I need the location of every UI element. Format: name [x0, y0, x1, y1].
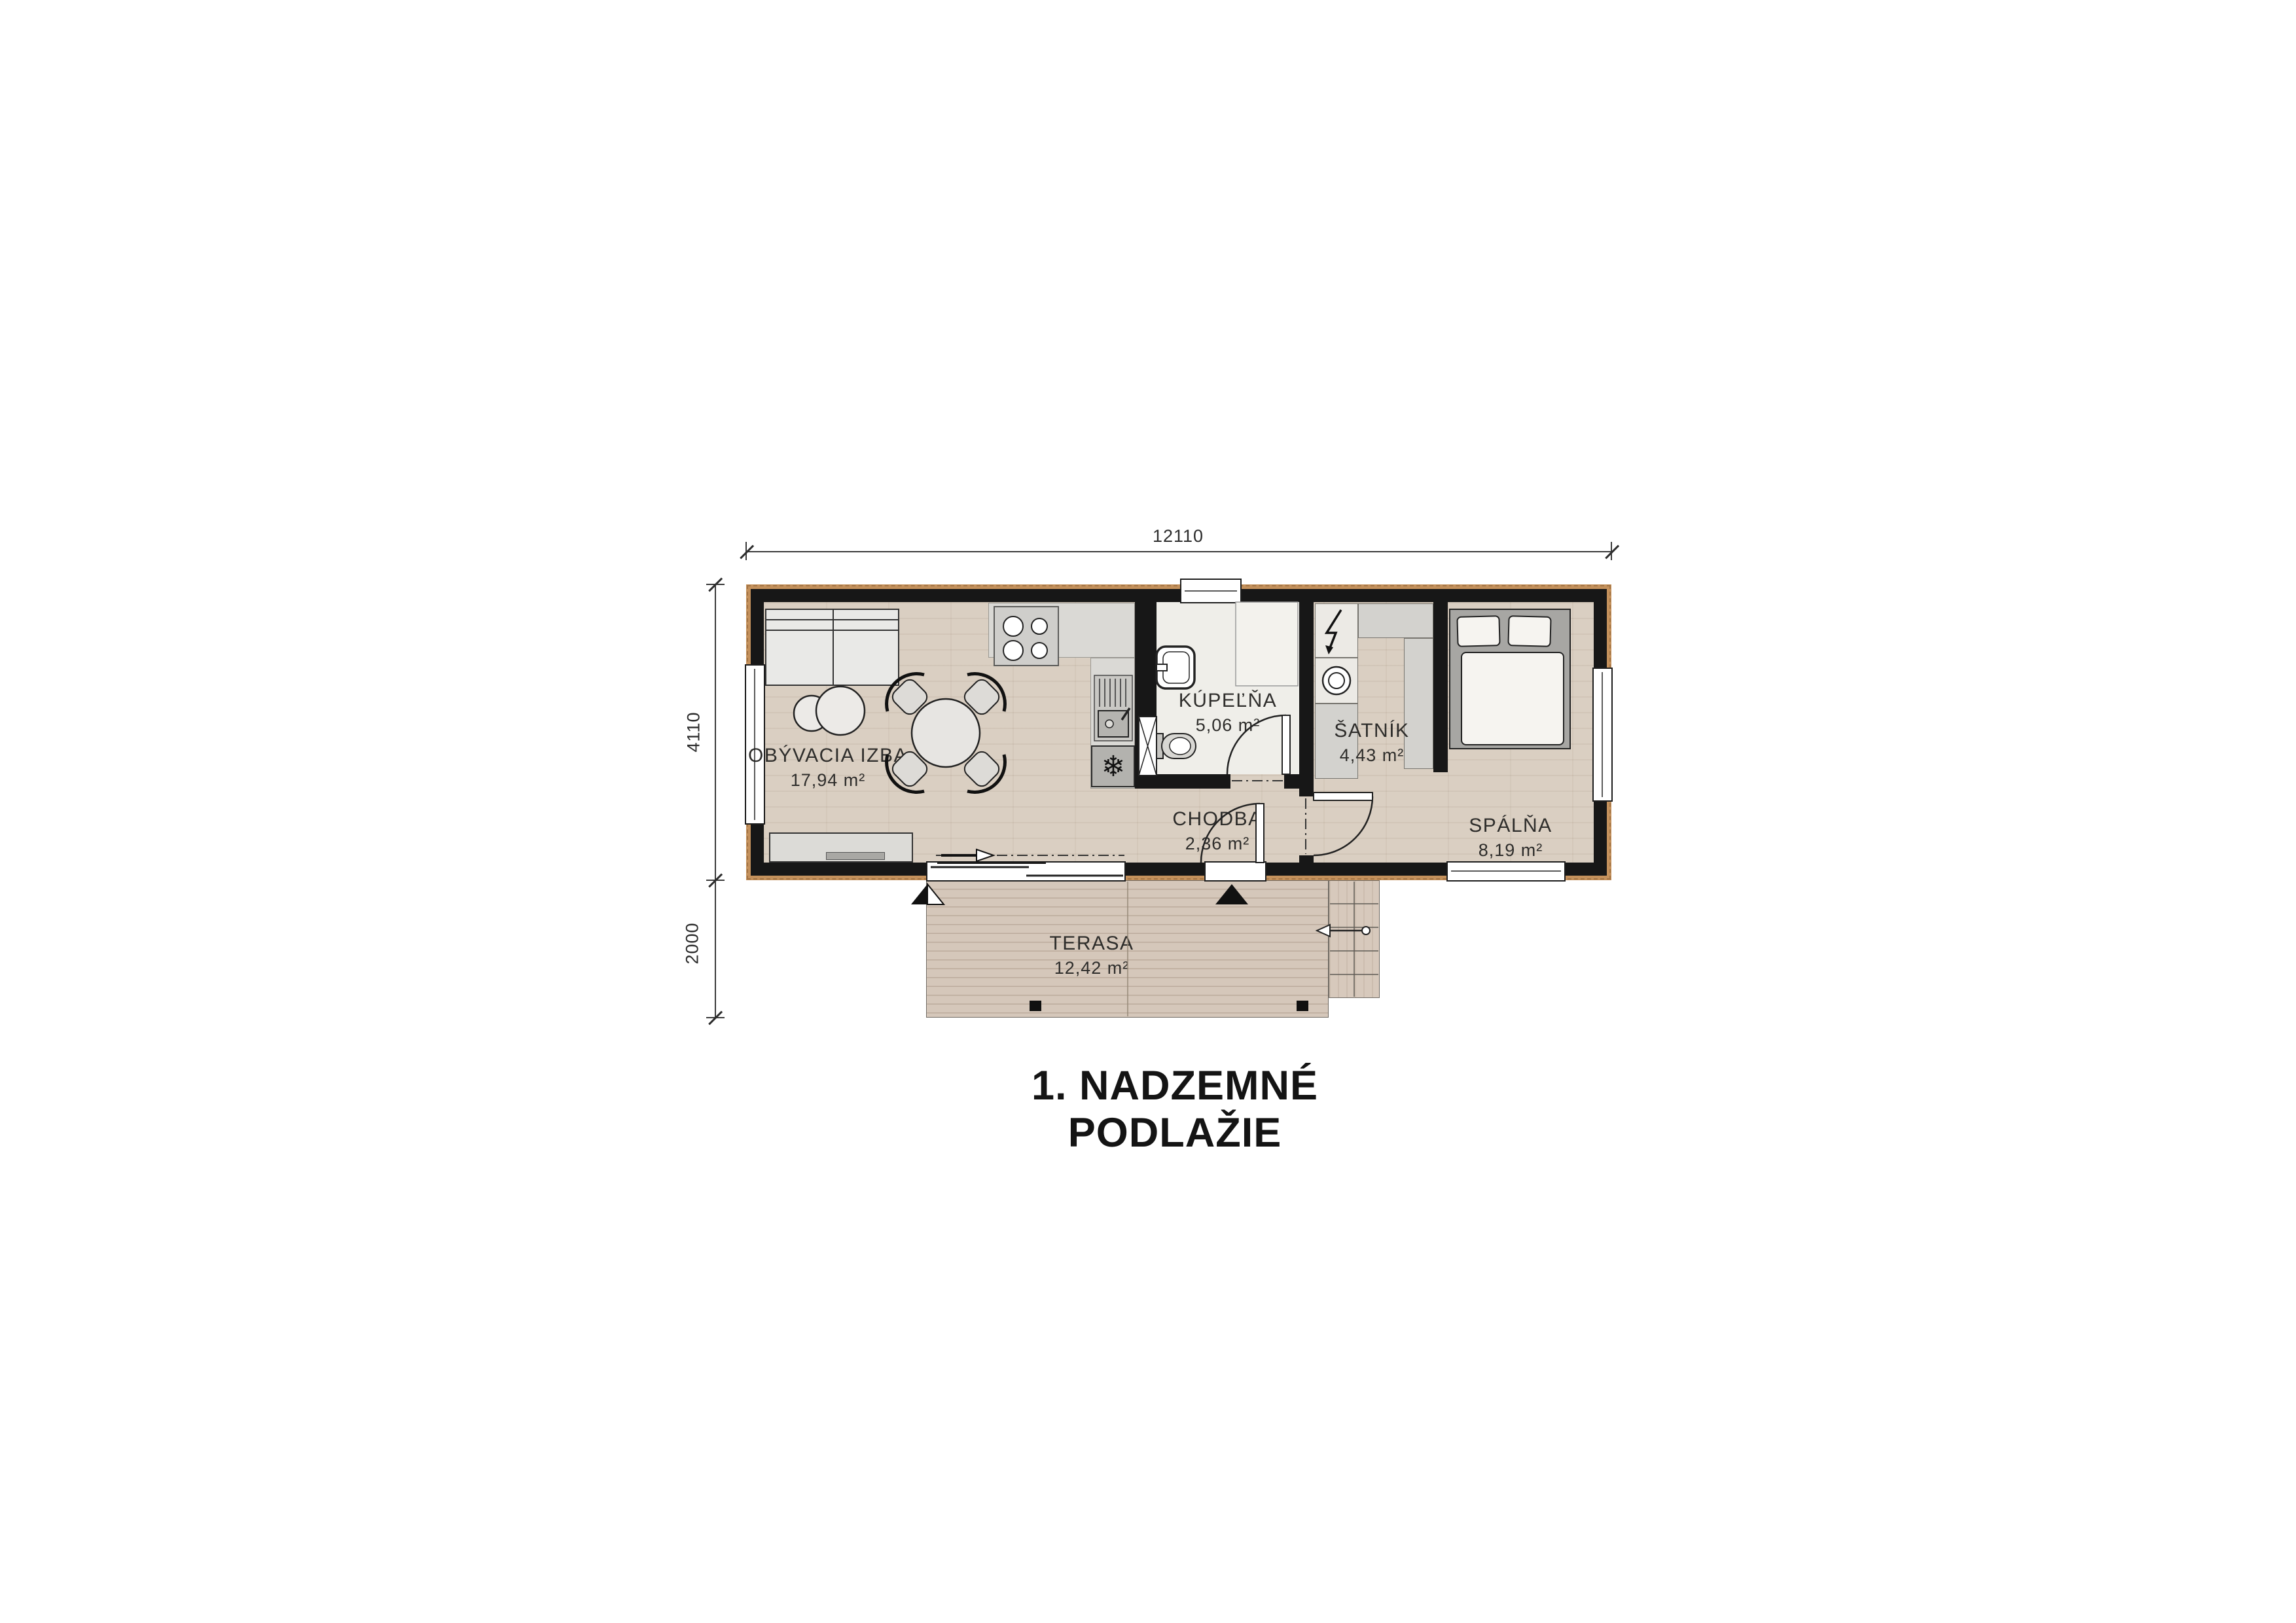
room-area: 2,36 m²	[1119, 834, 1316, 854]
entrance-door-threshold	[1204, 861, 1266, 882]
room-label-wardrobe: ŠATNÍK 4,43 m²	[1274, 720, 1470, 766]
pillow	[1507, 615, 1551, 647]
window-bedroom-east	[1592, 668, 1613, 802]
terrace-post	[1297, 1001, 1308, 1011]
room-area: 17,94 m²	[730, 770, 926, 791]
terrace-stairs	[1329, 880, 1380, 998]
dimension-house-depth: 4110	[684, 696, 704, 768]
sliding-door-living	[926, 861, 1126, 882]
room-name: ŠATNÍK	[1274, 720, 1470, 742]
pillow	[1456, 615, 1500, 647]
stove-cooktop	[994, 606, 1059, 666]
room-label-living: OBÝVACIA IZBA 17,94 m²	[730, 745, 926, 791]
room-name: KÚPEĽŇA	[1130, 690, 1326, 712]
fridge	[1091, 745, 1135, 787]
room-label-terrace: TERASA 12,42 m²	[994, 933, 1190, 978]
dimension-total-width: 12110	[1139, 526, 1217, 546]
dimension-terrace-depth: 2000	[683, 908, 703, 980]
room-label-hallway: CHODBA 2,36 m²	[1119, 808, 1316, 854]
room-name: TERASA	[994, 933, 1190, 955]
tv-stand	[769, 832, 913, 863]
room-name: SPÁLŇA	[1412, 815, 1609, 837]
window-bedroom-south	[1446, 861, 1566, 882]
duvet	[1461, 652, 1564, 745]
tv	[826, 852, 885, 860]
towel-radiator	[1287, 624, 1297, 686]
dimension-line-left	[715, 584, 716, 1018]
sofa	[765, 609, 899, 686]
page-title: 1. NADZEMNÉ PODLAŽIE	[920, 1062, 1430, 1156]
wall-hall-stub-bottom	[1299, 855, 1314, 863]
room-name: CHODBA	[1119, 808, 1316, 830]
window-bathroom-north	[1180, 579, 1242, 603]
room-name: OBÝVACIA IZBA	[730, 745, 926, 767]
wardrobe-top	[1358, 603, 1433, 638]
wall-bathroom-stub	[1284, 774, 1299, 789]
dimension-line-top	[746, 551, 1611, 552]
wall-bathroom-bottom	[1135, 774, 1230, 789]
room-area: 8,19 m²	[1412, 840, 1609, 861]
room-area: 12,42 m²	[994, 958, 1190, 978]
room-area: 4,43 m²	[1274, 745, 1470, 766]
electric-panel	[1315, 603, 1358, 658]
terrace-post	[1030, 1001, 1041, 1011]
floor-plan: 12110 4110 2000	[681, 517, 1662, 1145]
room-label-bedroom: SPÁLŇA 8,19 m²	[1412, 815, 1609, 861]
